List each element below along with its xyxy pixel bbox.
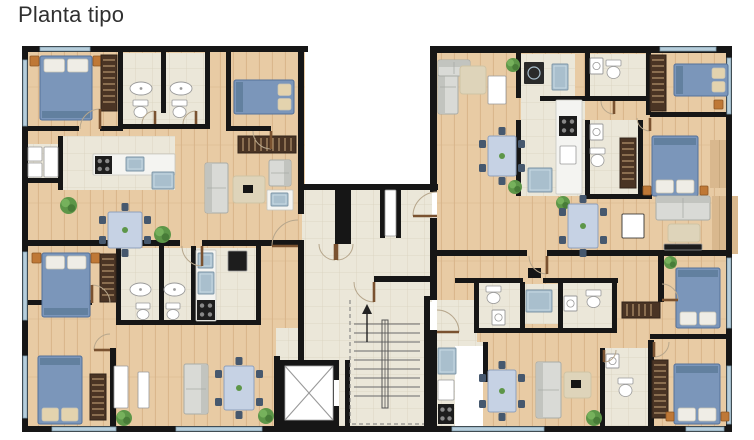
burner bbox=[570, 128, 574, 132]
bed-b1-second bbox=[652, 136, 698, 196]
closet-body bbox=[622, 302, 660, 318]
dryer bbox=[28, 163, 42, 177]
sink-drain bbox=[173, 288, 176, 291]
floor-plan-page: Planta tipo bbox=[0, 0, 754, 440]
burner bbox=[105, 159, 109, 163]
stove bbox=[95, 156, 112, 174]
burner bbox=[562, 119, 566, 123]
foot-band bbox=[676, 66, 683, 94]
bed-b2-mid bbox=[676, 268, 720, 328]
toilet-bowl bbox=[587, 297, 600, 308]
nightstand bbox=[714, 100, 723, 109]
toilet-bowl bbox=[591, 155, 604, 167]
desk bbox=[138, 372, 149, 408]
burner bbox=[440, 407, 444, 411]
wall bbox=[638, 120, 643, 196]
chair bbox=[518, 374, 525, 382]
sink-body bbox=[564, 296, 577, 311]
wall bbox=[27, 126, 79, 131]
chair bbox=[499, 413, 506, 421]
chair bbox=[580, 195, 587, 203]
chair bbox=[479, 164, 486, 172]
foliage bbox=[68, 204, 76, 212]
steel-body bbox=[438, 348, 456, 374]
pillow bbox=[42, 408, 59, 421]
stove bbox=[559, 116, 577, 136]
toilet-bowl bbox=[619, 385, 632, 397]
chair bbox=[518, 140, 525, 148]
bath-sink bbox=[164, 283, 185, 296]
wall bbox=[474, 328, 617, 333]
toilet bbox=[136, 303, 150, 320]
wall bbox=[430, 218, 437, 300]
wall bbox=[100, 126, 123, 131]
tv-console bbox=[238, 136, 296, 153]
closet bbox=[622, 302, 660, 318]
chair bbox=[215, 370, 222, 378]
steel-body bbox=[528, 168, 552, 192]
washer-body bbox=[524, 62, 544, 84]
chair bbox=[256, 370, 263, 378]
bath-sink bbox=[130, 82, 152, 95]
toilet-tank bbox=[586, 290, 601, 296]
wall bbox=[298, 46, 304, 192]
bath-sink bbox=[564, 296, 577, 311]
tv bbox=[571, 380, 581, 388]
closet-body bbox=[101, 55, 117, 111]
entry-floor-b2 bbox=[437, 300, 477, 342]
balcony-mid-right bbox=[712, 196, 738, 254]
kitchen-sink bbox=[126, 157, 144, 171]
chair bbox=[518, 400, 525, 408]
rug bbox=[668, 224, 700, 242]
tv-console bbox=[664, 244, 702, 250]
nightstand bbox=[32, 253, 41, 263]
window bbox=[52, 427, 116, 431]
foliage bbox=[265, 415, 272, 422]
plant bbox=[154, 226, 171, 243]
stove-top bbox=[95, 156, 112, 174]
centerpiece bbox=[499, 388, 505, 394]
stove bbox=[197, 300, 215, 320]
closet bbox=[90, 374, 106, 420]
wall bbox=[118, 51, 123, 129]
toilet-tank bbox=[590, 148, 605, 154]
shelf bbox=[552, 64, 568, 90]
foot-band bbox=[40, 358, 80, 365]
chair bbox=[99, 216, 106, 224]
window bbox=[40, 47, 90, 51]
chair bbox=[236, 357, 243, 365]
foot-band bbox=[678, 270, 718, 277]
centerpiece bbox=[122, 227, 128, 233]
chair bbox=[499, 177, 506, 185]
tv bbox=[243, 185, 253, 193]
chair bbox=[215, 398, 222, 406]
pillow bbox=[677, 180, 695, 193]
closet-body bbox=[620, 138, 636, 188]
chair bbox=[559, 236, 566, 244]
bed-b2 bbox=[674, 364, 720, 424]
foot-band bbox=[44, 308, 88, 315]
toilet-tank bbox=[606, 60, 621, 66]
bath-sink bbox=[170, 82, 192, 95]
sofa bbox=[269, 160, 291, 186]
washer bbox=[28, 147, 42, 161]
pillow bbox=[68, 59, 89, 72]
wall bbox=[543, 278, 618, 283]
pillow bbox=[278, 99, 291, 111]
toilet bbox=[618, 378, 633, 397]
foot-band bbox=[236, 82, 243, 112]
nightstand bbox=[666, 412, 674, 421]
chair bbox=[600, 208, 607, 216]
burner bbox=[447, 416, 451, 420]
window bbox=[686, 427, 724, 431]
wall bbox=[585, 120, 590, 196]
toilet bbox=[486, 286, 501, 304]
toilet bbox=[166, 303, 180, 320]
chair bbox=[256, 398, 263, 406]
wall bbox=[159, 246, 164, 324]
dishwasher bbox=[528, 168, 552, 192]
steel-body bbox=[152, 172, 174, 189]
toilet-tank bbox=[172, 100, 187, 106]
laundry-counter bbox=[44, 147, 58, 177]
centerpiece bbox=[580, 223, 586, 229]
window bbox=[660, 47, 716, 51]
wall bbox=[298, 188, 304, 214]
console bbox=[114, 366, 128, 408]
wall bbox=[374, 276, 430, 282]
kitchen-sink bbox=[198, 272, 214, 294]
floor-plan-drawing bbox=[0, 0, 754, 440]
plant bbox=[586, 410, 602, 426]
toilet bbox=[172, 100, 187, 118]
bed-master-a1 bbox=[40, 56, 92, 120]
elevator-lobby-door bbox=[385, 190, 396, 236]
wall bbox=[335, 190, 351, 244]
wall bbox=[121, 124, 207, 129]
wall bbox=[650, 334, 732, 339]
burner bbox=[447, 407, 451, 411]
toilet bbox=[606, 60, 621, 79]
rug bbox=[460, 66, 486, 94]
corridor-floor-upper bbox=[302, 190, 432, 302]
wall bbox=[161, 51, 166, 113]
wall bbox=[424, 296, 430, 428]
bed-master-a2 bbox=[42, 253, 90, 317]
burner bbox=[570, 119, 574, 123]
wall bbox=[435, 250, 527, 256]
armchair bbox=[622, 214, 644, 238]
wall bbox=[27, 178, 60, 183]
bed-b1 bbox=[674, 64, 728, 96]
elevator-door bbox=[334, 380, 339, 406]
closet bbox=[101, 55, 117, 111]
foliage bbox=[512, 64, 518, 70]
foot-band bbox=[654, 138, 696, 145]
pillow bbox=[680, 312, 697, 325]
window bbox=[452, 427, 544, 431]
wall bbox=[116, 246, 121, 324]
toilet-tank bbox=[136, 303, 150, 309]
wall bbox=[430, 330, 437, 426]
desk bbox=[488, 76, 506, 104]
foliage bbox=[670, 262, 676, 268]
pillow bbox=[699, 408, 717, 421]
pillow bbox=[656, 180, 674, 193]
burner bbox=[200, 312, 204, 316]
washer bbox=[526, 290, 552, 312]
plant bbox=[60, 197, 77, 214]
burner bbox=[440, 416, 444, 420]
toilet-bowl bbox=[607, 67, 620, 79]
bath-sink bbox=[130, 283, 151, 296]
wall bbox=[586, 194, 652, 199]
steel-body bbox=[526, 290, 552, 312]
sink-drain bbox=[140, 87, 143, 90]
wall bbox=[302, 184, 438, 190]
chair bbox=[600, 236, 607, 244]
burner bbox=[98, 167, 102, 171]
wall bbox=[430, 46, 437, 192]
window bbox=[23, 252, 27, 320]
chair bbox=[499, 127, 506, 135]
window bbox=[727, 258, 731, 328]
foot-band bbox=[676, 366, 718, 373]
chair bbox=[479, 374, 486, 382]
sofa bbox=[184, 364, 208, 414]
wall bbox=[547, 250, 732, 256]
toilet-bowl bbox=[167, 310, 179, 320]
closet bbox=[620, 138, 636, 188]
foliage bbox=[593, 417, 600, 424]
pillow bbox=[712, 82, 725, 93]
bed-second-a1 bbox=[234, 80, 294, 114]
wall bbox=[256, 246, 261, 324]
bath-sink bbox=[492, 310, 505, 325]
pillow bbox=[700, 312, 717, 325]
wall bbox=[380, 190, 385, 238]
washer bbox=[524, 62, 544, 84]
sink-body bbox=[590, 124, 603, 140]
sofa bbox=[536, 362, 561, 418]
kitchen-sink bbox=[560, 146, 576, 164]
burner bbox=[208, 312, 212, 316]
chair bbox=[144, 216, 151, 224]
nightstand bbox=[30, 56, 39, 66]
window bbox=[176, 427, 262, 431]
wall bbox=[274, 426, 438, 432]
chair bbox=[518, 164, 525, 172]
nightstand bbox=[721, 412, 729, 421]
wall bbox=[585, 51, 590, 98]
plant bbox=[116, 410, 132, 426]
closet bbox=[650, 55, 666, 111]
elevator bbox=[279, 360, 339, 426]
closet-body bbox=[650, 55, 666, 111]
chair bbox=[122, 249, 129, 257]
wall bbox=[520, 282, 525, 330]
pillow bbox=[712, 68, 725, 79]
pillow bbox=[62, 408, 79, 421]
dishwasher bbox=[152, 172, 174, 189]
sofa bbox=[205, 163, 228, 213]
chair bbox=[236, 411, 243, 419]
wall bbox=[455, 278, 523, 283]
chair bbox=[144, 236, 151, 244]
centerpiece bbox=[236, 385, 242, 391]
pantry-floor-b2 bbox=[455, 346, 483, 426]
sink-drain bbox=[180, 87, 183, 90]
toilet-tank bbox=[618, 378, 633, 384]
toilet-tank bbox=[166, 303, 180, 309]
wall bbox=[650, 112, 732, 117]
bath-sink bbox=[590, 124, 603, 140]
wall bbox=[116, 320, 261, 325]
wall bbox=[516, 51, 521, 98]
wall bbox=[612, 278, 617, 330]
burner bbox=[562, 128, 566, 132]
pillow bbox=[678, 408, 696, 421]
chair bbox=[499, 361, 506, 369]
sink-body bbox=[590, 58, 603, 74]
pillow bbox=[44, 59, 65, 72]
toilet bbox=[586, 290, 601, 308]
burner bbox=[105, 167, 109, 171]
window bbox=[23, 60, 27, 126]
chair bbox=[559, 208, 566, 216]
toilet bbox=[590, 148, 605, 167]
burner bbox=[208, 303, 212, 307]
bed-second-a2 bbox=[38, 356, 82, 424]
chair bbox=[99, 236, 106, 244]
steel-body bbox=[552, 64, 568, 90]
centerpiece bbox=[499, 153, 505, 159]
foliage bbox=[162, 233, 170, 241]
fridge bbox=[228, 251, 247, 271]
chair bbox=[122, 203, 129, 211]
sink bbox=[271, 193, 288, 206]
fridge bbox=[438, 348, 456, 374]
sofa bbox=[656, 196, 710, 220]
sink-body bbox=[492, 310, 505, 325]
wall bbox=[205, 51, 210, 129]
plant bbox=[258, 408, 274, 424]
nightstand bbox=[700, 186, 708, 195]
stove bbox=[438, 404, 454, 424]
chair bbox=[580, 249, 587, 257]
burner bbox=[98, 159, 102, 163]
sink-drain bbox=[139, 288, 142, 291]
wall bbox=[558, 282, 563, 330]
foot-band bbox=[42, 111, 90, 118]
pillow bbox=[278, 84, 291, 96]
bath-sink bbox=[590, 58, 603, 74]
nightstand bbox=[643, 186, 651, 195]
plant bbox=[508, 180, 522, 194]
burner bbox=[200, 303, 204, 307]
plant bbox=[664, 256, 677, 269]
wall bbox=[191, 246, 196, 324]
toilet-bowl bbox=[137, 310, 149, 320]
closet bbox=[652, 360, 668, 418]
plant bbox=[506, 58, 520, 72]
nightstand bbox=[91, 253, 100, 263]
toilet-tank bbox=[133, 100, 148, 106]
wall bbox=[226, 51, 231, 131]
stove-top bbox=[559, 116, 577, 136]
chair bbox=[479, 140, 486, 148]
foliage bbox=[123, 417, 130, 424]
stove-top bbox=[438, 404, 454, 424]
toilet-tank bbox=[486, 286, 501, 292]
foliage bbox=[514, 186, 520, 192]
wall bbox=[658, 256, 664, 302]
pillow bbox=[68, 256, 87, 269]
kitchen-sink bbox=[438, 380, 454, 400]
wall bbox=[396, 190, 401, 238]
wall bbox=[345, 360, 350, 428]
pillow bbox=[46, 256, 65, 269]
stove-top bbox=[197, 300, 215, 320]
window bbox=[23, 356, 27, 418]
wall bbox=[298, 246, 304, 364]
toilet-bowl bbox=[173, 107, 186, 118]
toilet-bowl bbox=[487, 293, 500, 304]
page-title: Planta tipo bbox=[18, 2, 124, 28]
wall bbox=[231, 126, 271, 131]
wall bbox=[474, 282, 479, 330]
chair bbox=[479, 400, 486, 408]
